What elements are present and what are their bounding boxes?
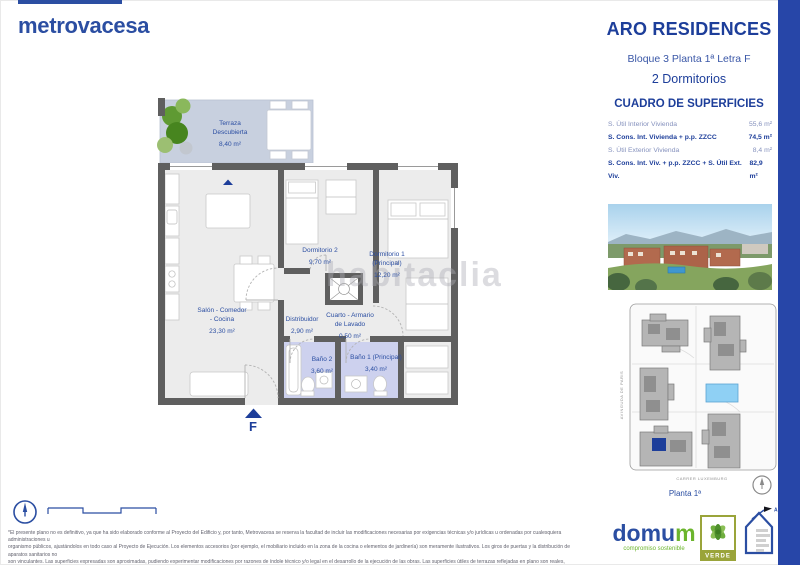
unit-type: 2 Dormitorios — [600, 72, 778, 86]
room-label-dormitorio-2: Dormitorio 2 9,70 m² — [302, 246, 337, 267]
table-row: S. Útil Interior Vivienda55,6 m² — [600, 118, 778, 131]
street-label-left: AVINGUDA DE PARIS — [619, 371, 624, 419]
watermark: habitaclia — [326, 256, 503, 295]
room-label-terraza: TerrazaDescubierta 8,40 m² — [213, 119, 248, 150]
legal-disclaimer: *El presente plano no es definitivo, ya … — [8, 530, 586, 565]
room-label-bano-1: Baño 1 (Principal) 3,40 m² — [350, 353, 402, 374]
site-pool — [706, 384, 738, 402]
sheet-header: ARO RESIDENCES Bloque 3 Planta 1ª Letra … — [600, 0, 778, 86]
room-label-distribuidor: Distribuidor 2,90 m² — [286, 315, 319, 336]
unit-letter: F — [249, 419, 257, 434]
brand-top-bar — [18, 0, 122, 4]
surfaces-table: CUADRO DE SUPERFICIES S. Útil Interior V… — [600, 98, 778, 183]
compass-icon — [753, 476, 771, 494]
highlighted-unit — [652, 438, 666, 451]
compass-icon — [12, 499, 38, 525]
room-label-salon: Salón - Comedor- Cocina 23,30 m² — [197, 306, 246, 337]
verde-certification-icon: VERDE — [700, 515, 736, 561]
brand-logo: metrovacesa — [18, 13, 149, 39]
floorplan-sheet: metrovacesa ARO RESIDENCES Bloque 3 Plan… — [0, 0, 800, 565]
project-title: ARO RESIDENCES — [600, 19, 778, 40]
surfaces-title: CUADRO DE SUPERFICIES — [600, 98, 778, 110]
aerial-photo — [608, 204, 772, 290]
scale-bar — [46, 504, 158, 520]
svg-text:A: A — [774, 508, 778, 514]
room-label-bano-2: Baño 2 3,60 m² — [311, 355, 333, 376]
street-label-bottom: CARRER LUXEMBURG — [676, 476, 727, 481]
terrace-furniture — [267, 101, 311, 159]
room-label-dormitorio-1: Dormitorio 1(Principal) 12,20 m² — [369, 250, 404, 281]
table-row: S. Útil Exterior Vivienda8,4 m² — [600, 144, 778, 157]
unit-location: Bloque 3 Planta 1ª Letra F — [600, 53, 778, 65]
svg-text:VERDE: VERDE — [705, 554, 731, 560]
table-row: S. Cons. Int. Vivienda + p.p. ZZCC74,5 m… — [600, 131, 778, 144]
room-label-cuarto-lavado: Cuarto - Armariode Lavado 0,50 m² — [326, 311, 374, 342]
energy-rating-icon: A — [740, 503, 778, 561]
entrance-triangle-icon — [245, 409, 262, 419]
site-plan: AVINGUDA DE PARIS CARRER LUXEMBURG Plant… — [618, 300, 783, 500]
domum-logo: domum compromiso sostenible — [606, 522, 702, 552]
table-row: S. Cons. Int. Viv. + p.p. ZZCC + S. Útil… — [600, 157, 778, 183]
site-plan-caption: Planta 1ª — [669, 489, 701, 498]
